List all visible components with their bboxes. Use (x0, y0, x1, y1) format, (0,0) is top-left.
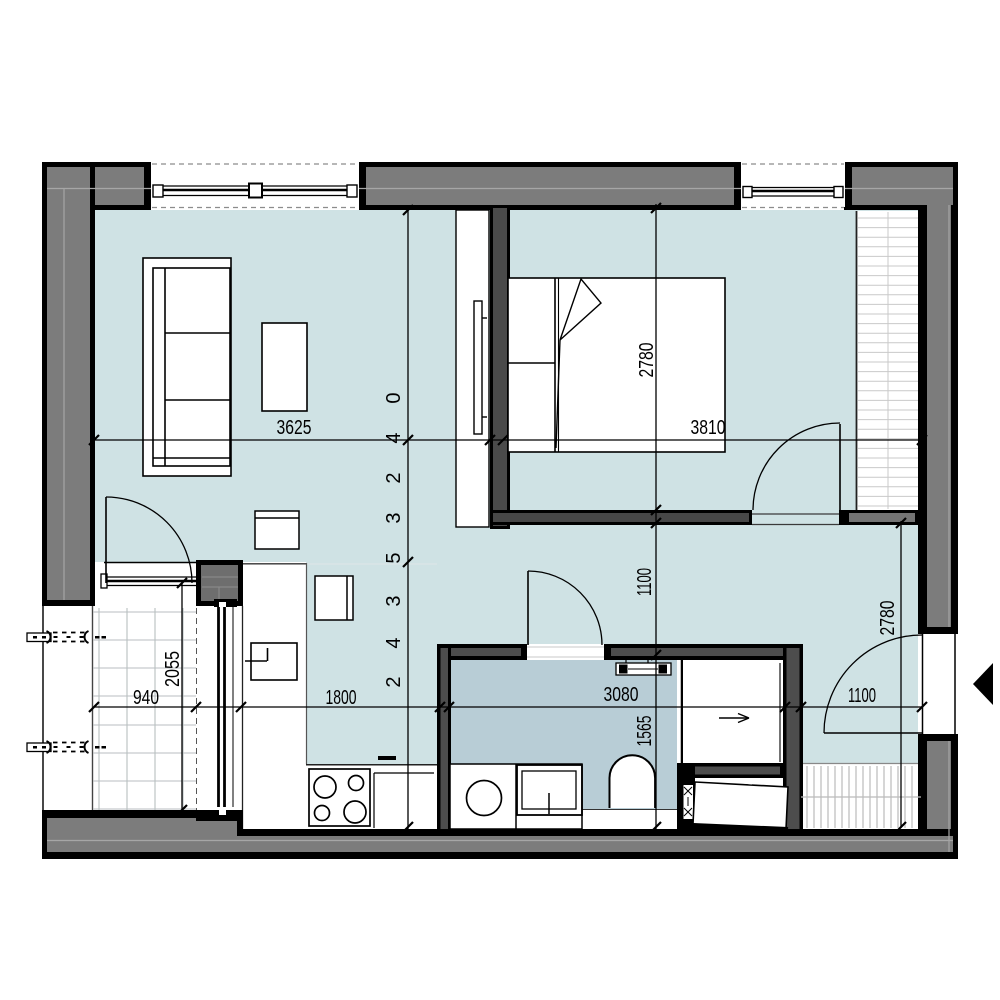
svg-text:2: 2 (383, 676, 405, 687)
svg-text:3: 3 (383, 595, 405, 606)
svg-text:2055: 2055 (162, 651, 184, 687)
svg-text:3810: 3810 (691, 417, 726, 439)
svg-text:2780: 2780 (877, 601, 899, 636)
svg-text:5: 5 (383, 552, 405, 563)
svg-text:3: 3 (383, 512, 405, 523)
svg-text:940: 940 (133, 687, 159, 709)
svg-text:0: 0 (383, 392, 405, 403)
svg-text:4: 4 (383, 637, 405, 648)
svg-text:4: 4 (383, 432, 405, 443)
svg-text:3625: 3625 (277, 417, 312, 439)
svg-text:2780: 2780 (636, 343, 658, 378)
svg-text:1100: 1100 (634, 568, 656, 596)
svg-text:2: 2 (383, 472, 405, 483)
svg-text:1100: 1100 (848, 685, 876, 707)
svg-text:1565: 1565 (634, 716, 656, 747)
svg-text:3080: 3080 (604, 684, 639, 706)
svg-text:1800: 1800 (326, 687, 357, 709)
